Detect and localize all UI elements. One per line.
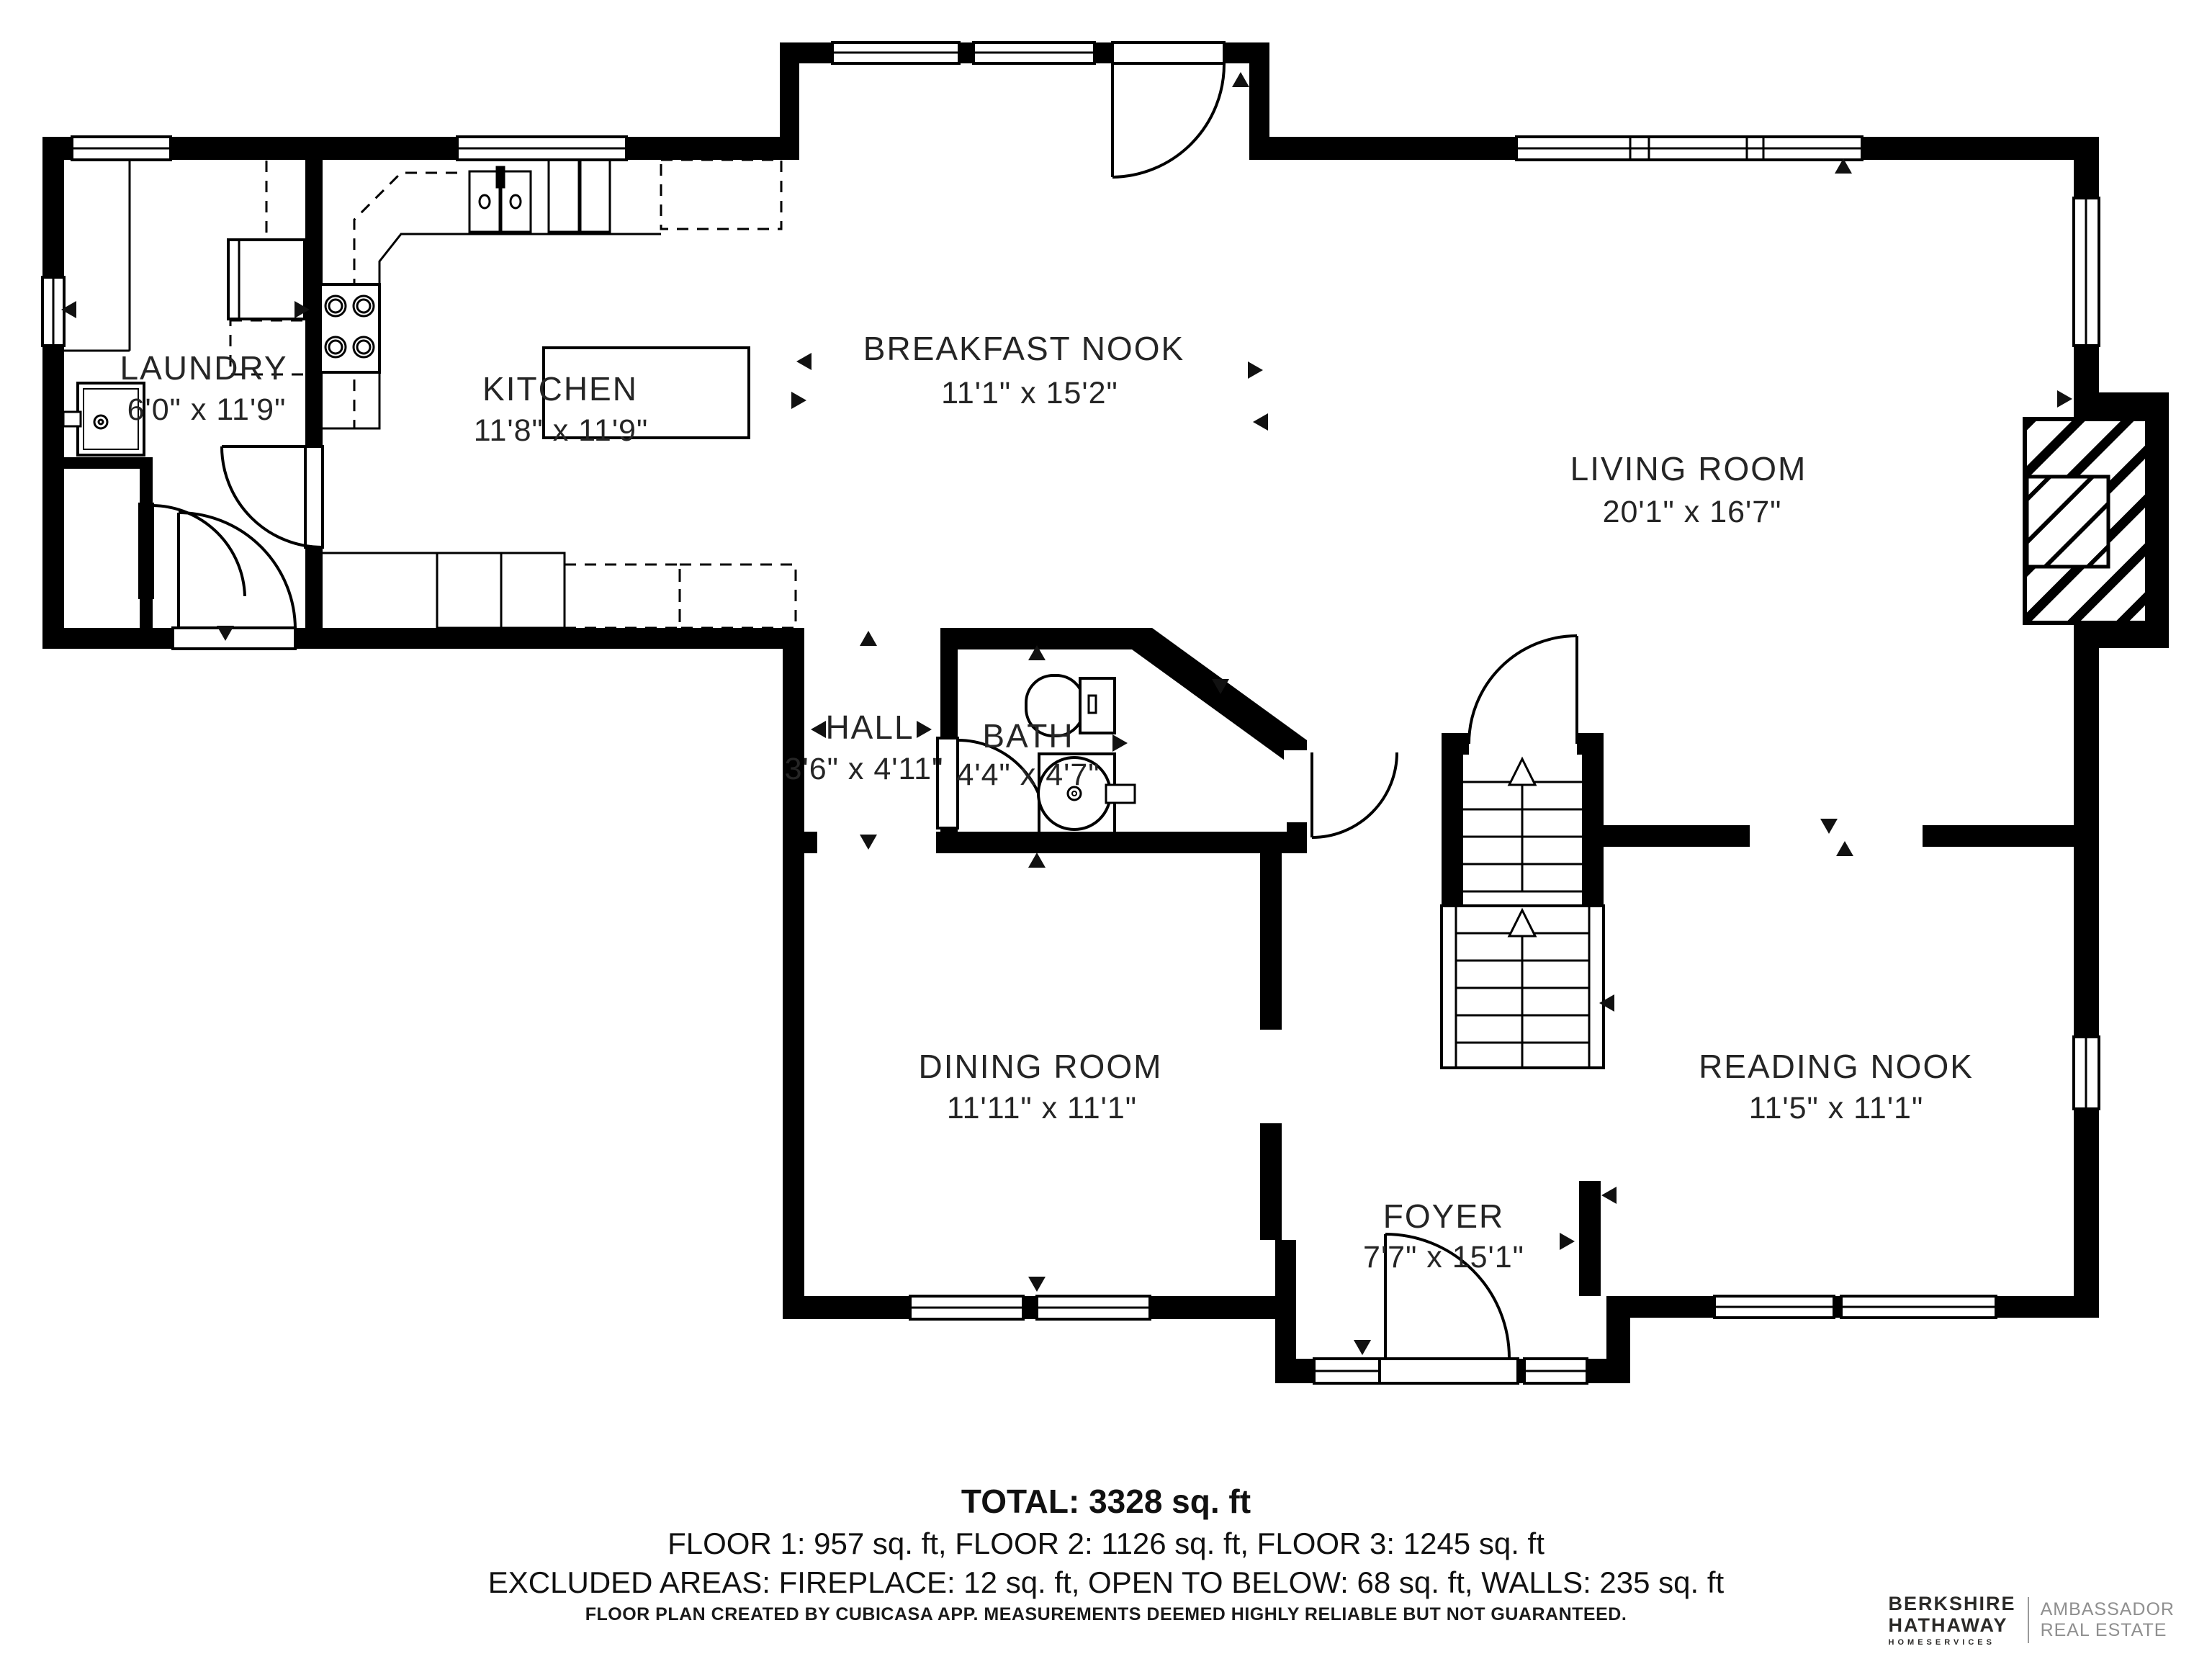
arrow bbox=[1112, 734, 1128, 752]
wall-right-lower bbox=[2074, 648, 2099, 1318]
window-foyer-right bbox=[1524, 1359, 1587, 1383]
kitchen-stove bbox=[320, 284, 379, 372]
brand-line2: HATHAWAY bbox=[1889, 1614, 2016, 1636]
wall-left-lower bbox=[783, 628, 804, 1319]
window-laundry-top bbox=[72, 137, 171, 160]
label-breakfast-nook-dims: 11'1" x 15'2" bbox=[941, 376, 1118, 410]
berkshire-hathaway-wordmark: BERKSHIRE HATHAWAY HOMESERVICES bbox=[1889, 1593, 2016, 1647]
wall-fireplace-outer bbox=[2147, 392, 2169, 648]
opening-stairs-top bbox=[1469, 730, 1577, 757]
wall-stairs-right bbox=[1582, 733, 1604, 906]
arrow bbox=[1253, 413, 1268, 431]
window-dining-2 bbox=[1037, 1296, 1150, 1319]
stairs-up-arrow-1 bbox=[1509, 759, 1535, 785]
window-kitchen-top bbox=[457, 137, 626, 160]
floor-areas: FLOOR 1: 957 sq. ft, FLOOR 2: 1126 sq. f… bbox=[0, 1527, 2212, 1561]
kitchen-upper-cabinets-dashed bbox=[661, 160, 781, 229]
area-summary: TOTAL: 3328 sq. ft FLOOR 1: 957 sq. ft, … bbox=[0, 1482, 2212, 1604]
label-laundry-dims: 6'0" x 11'9" bbox=[127, 392, 287, 427]
wall-bath-diagonal bbox=[1132, 628, 1307, 762]
window-right-upper bbox=[2074, 198, 2099, 346]
laundry-interior-wall-h bbox=[63, 457, 153, 469]
arrow bbox=[1248, 361, 1263, 379]
opening-dining-foyer bbox=[1257, 1030, 1285, 1123]
arrow bbox=[791, 392, 806, 409]
wall-stairs-left bbox=[1442, 733, 1463, 906]
arrow bbox=[860, 631, 877, 646]
floor-plan-svg: LAUNDRY 6'0" x 11'9" KITCHEN 11'8" x 11'… bbox=[0, 0, 2212, 1659]
stairs bbox=[1442, 759, 1604, 1068]
ambassador-wordmark: AMBASSADOR REAL ESTATE bbox=[2041, 1599, 2175, 1641]
wall-bottom-laundry-kitchen bbox=[42, 628, 804, 649]
window-dining-1 bbox=[910, 1296, 1023, 1319]
label-hall-dims: 3'6" x 4'11" bbox=[785, 752, 944, 786]
label-reading-nook: READING NOOK bbox=[1699, 1048, 1974, 1085]
fireplace-firebox bbox=[2027, 477, 2108, 567]
label-kitchen-dims: 11'8" x 11'9" bbox=[474, 413, 648, 448]
door-bath-hall-to-living bbox=[1312, 752, 1397, 837]
label-living-room: LIVING ROOM bbox=[1570, 450, 1807, 487]
total-area: TOTAL: 3328 sq. ft bbox=[0, 1482, 2212, 1521]
kitchen-bottom-counter bbox=[323, 553, 796, 628]
arrow bbox=[917, 721, 932, 738]
brand-right1: AMBASSADOR bbox=[2041, 1599, 2175, 1620]
label-living-room-dims: 20'1" x 16'7" bbox=[1603, 495, 1782, 529]
opening-living-reading bbox=[1750, 822, 1923, 850]
arrow bbox=[1599, 994, 1614, 1012]
label-reading-nook-dims: 11'5" x 11'1" bbox=[1749, 1091, 1923, 1125]
door-laundry-to-kitchen bbox=[222, 446, 323, 547]
brokerage-logo: BERKSHIRE HATHAWAY HOMESERVICES AMBASSAD… bbox=[1889, 1593, 2175, 1647]
arrow bbox=[1232, 72, 1249, 87]
kitchen-faucet bbox=[497, 167, 504, 187]
wall-bath-top bbox=[940, 628, 1152, 649]
logo-divider bbox=[2028, 1597, 2029, 1643]
kitchen-counter-box-1 bbox=[549, 160, 579, 232]
door-laundry-alcove bbox=[140, 504, 245, 598]
arrow bbox=[2057, 390, 2072, 408]
opening-hall-dining bbox=[817, 829, 936, 856]
door-stairs-top bbox=[1469, 636, 1577, 744]
window-nook-2 bbox=[974, 42, 1094, 63]
window-reading-1 bbox=[1714, 1296, 1834, 1318]
label-bath-dims: 4'4" x 4'7" bbox=[957, 757, 1100, 792]
wall-fireplace-stub-bottom bbox=[2074, 623, 2169, 648]
arrow bbox=[1028, 1277, 1046, 1292]
door-laundry-exterior bbox=[173, 513, 295, 649]
door-breakfast-nook-exterior bbox=[1112, 42, 1224, 177]
floor-plan-page: LAUNDRY 6'0" x 11'9" KITCHEN 11'8" x 11'… bbox=[0, 0, 2212, 1659]
disclaimer-text: FLOOR PLAN CREATED BY CUBICASA APP. MEAS… bbox=[0, 1604, 2212, 1625]
arrow bbox=[796, 353, 811, 370]
window-right-reading bbox=[2074, 1037, 2099, 1109]
arrow bbox=[811, 721, 826, 738]
kitchen-counter-below-stove bbox=[320, 372, 379, 428]
arrow bbox=[1601, 1187, 1617, 1204]
label-dining-room-dims: 11'11" x 11'1" bbox=[947, 1091, 1137, 1125]
wall-step-foyer-right bbox=[1606, 1296, 1630, 1383]
opening-bath-right bbox=[1284, 750, 1310, 822]
label-hall: HALL bbox=[825, 709, 914, 746]
kitchen-counter-box-2 bbox=[580, 160, 610, 232]
window-living-band bbox=[1516, 137, 1862, 160]
brand-right2: REAL ESTATE bbox=[2041, 1620, 2175, 1641]
stairs-upper-flight bbox=[1463, 759, 1582, 891]
arrow bbox=[1028, 853, 1046, 868]
kitchen-counter-edge bbox=[379, 234, 661, 284]
window-foyer-left bbox=[1314, 1359, 1380, 1383]
brand-line1: BERKSHIRE bbox=[1889, 1593, 2016, 1614]
stairs-lower-flight bbox=[1442, 906, 1604, 1068]
window-laundry-left bbox=[42, 277, 64, 346]
label-bath: BATH bbox=[982, 717, 1074, 755]
arrow bbox=[1560, 1233, 1575, 1250]
arrow bbox=[1354, 1340, 1371, 1355]
excluded-areas: EXCLUDED AREAS: FIREPLACE: 12 sq. ft, OP… bbox=[0, 1565, 2212, 1600]
label-dining-room: DINING ROOM bbox=[919, 1048, 1163, 1085]
label-laundry: LAUNDRY bbox=[120, 349, 288, 387]
wall-foyer-reading-stub bbox=[1579, 1181, 1601, 1296]
laundry-interior-wall-v bbox=[140, 469, 153, 628]
label-foyer: FOYER bbox=[1383, 1197, 1504, 1235]
label-kitchen: KITCHEN bbox=[482, 370, 638, 408]
label-breakfast-nook: BREAKFAST NOOK bbox=[863, 330, 1184, 367]
kitchen-sink bbox=[469, 167, 531, 232]
fireplace bbox=[2025, 419, 2147, 623]
label-foyer-dims: 7'7" x 15'1" bbox=[1363, 1240, 1524, 1274]
wall-left-upper bbox=[42, 137, 64, 649]
window-nook-1 bbox=[832, 42, 959, 63]
window-reading-2 bbox=[1841, 1296, 1996, 1318]
brand-line3: HOMESERVICES bbox=[1889, 1638, 2016, 1647]
stairs-up-arrow-2 bbox=[1509, 910, 1535, 936]
